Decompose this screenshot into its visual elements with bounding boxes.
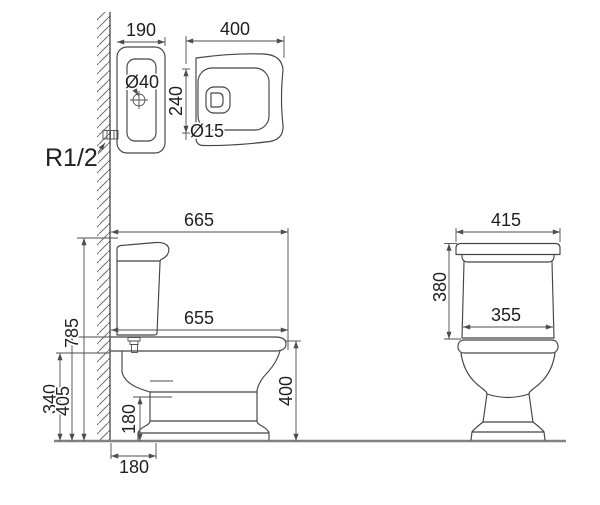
dim-tank-height-label: 380 <box>430 272 450 302</box>
front-bowl-joint <box>487 394 529 398</box>
dim-base-width-label: 355 <box>491 305 521 325</box>
front-base-right <box>533 422 545 440</box>
front-pedestal-left <box>483 394 487 422</box>
dim-fixing-hole-label: Ø15 <box>190 121 224 141</box>
dim-bowl-length-label: 400 <box>220 19 250 39</box>
dim-total-height-label: 785 <box>62 318 82 348</box>
front-bowl-left <box>461 353 487 394</box>
front-bowl-right <box>529 353 555 394</box>
dim-hole-spacing-label: 240 <box>166 86 186 116</box>
drawing-canvas: 190 400 Ø40 240 Ø15 R1/2 <box>0 0 600 505</box>
front-rim-band <box>458 340 558 353</box>
dim-bowl-depth-label: 655 <box>184 308 214 328</box>
wall-hatch <box>97 12 110 441</box>
dim-outlet-offset-label: 180 <box>119 457 149 477</box>
dim-rim-height-label: 400 <box>276 376 296 406</box>
front-base-left <box>471 422 483 440</box>
water-inlet-label: R1/2 <box>45 144 98 172</box>
fill-valve-fitting <box>128 338 140 353</box>
wall <box>97 12 110 441</box>
dim-tank-width-label: 415 <box>491 210 521 230</box>
dim-lid-hole-label: Ø40 <box>125 72 159 92</box>
dim-tank-depth-label: 190 <box>126 20 156 40</box>
front-lid-molding <box>462 255 554 263</box>
plan-trap-inner <box>211 93 223 107</box>
side-cistern-outline <box>117 242 169 335</box>
front-pedestal-right <box>529 394 533 422</box>
side-view: 665 655 785 340 405 180 180 400 <box>40 210 301 477</box>
dim-outlet-height-label: 180 <box>119 404 139 434</box>
plan-lid-hole-marker <box>130 91 148 109</box>
front-lid-top <box>456 244 560 255</box>
plan-view: 190 400 Ø40 240 Ø15 R1/2 <box>45 19 284 172</box>
dim-tank-base-height-label: 405 <box>53 386 73 416</box>
plan-trap-outer <box>206 87 230 113</box>
front-view: 415 380 355 <box>430 210 560 440</box>
dim-overall-depth-label: 665 <box>184 210 214 230</box>
toilet-technical-drawing: 190 400 Ø40 240 Ø15 R1/2 <box>0 0 600 505</box>
